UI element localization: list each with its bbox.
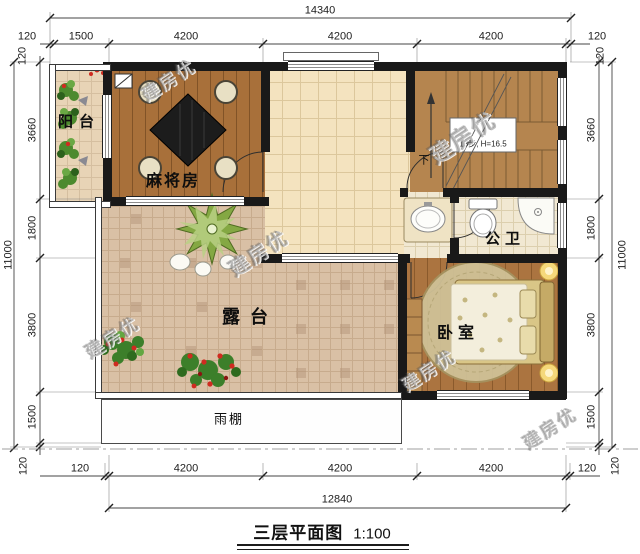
- wall-mahjong-hall-divider: [261, 70, 270, 152]
- wall-bedroom-south-a: [398, 391, 438, 400]
- window-sill-top: [283, 52, 379, 61]
- dim-top-offset-left: 120: [18, 47, 29, 65]
- window-bedroom-south: [437, 390, 529, 400]
- dim-left-0: 3660: [28, 118, 39, 142]
- wall-stairs-south-b: [443, 188, 566, 197]
- window-bath-east: [557, 203, 567, 248]
- dim-bottom-total: 12840: [322, 495, 353, 506]
- dim-top-5: 120: [588, 32, 606, 43]
- drawing-title: 三层平面图: [253, 519, 343, 544]
- wall-top-right: [374, 62, 566, 71]
- corner-shower-icon: [518, 198, 554, 234]
- room-label-balcony: 阳台: [58, 115, 100, 130]
- drawing-scale: 1:100: [353, 526, 391, 543]
- dim-top-0: 120: [18, 32, 36, 43]
- bed-icon: [451, 262, 558, 382]
- dim-right-total: 11000: [618, 240, 629, 270]
- terrace-parapet-south: [95, 392, 402, 399]
- terrace-parapet-west: [95, 197, 102, 399]
- dim-right-4: 120: [611, 457, 622, 475]
- wall-bath-west-a: [450, 196, 459, 203]
- wall-east-b: [558, 126, 567, 140]
- wall-bedroom-south-b: [529, 391, 566, 400]
- wall-east-c: [558, 184, 567, 203]
- dim-left-2: 3800: [28, 313, 39, 337]
- dim-left-1: 1800: [28, 216, 39, 240]
- dim-bottom-4: 120: [578, 464, 596, 475]
- dim-top-1: 1500: [69, 32, 93, 43]
- rain-canopy-outline: [101, 399, 402, 444]
- dim-bottom-1: 4200: [174, 464, 198, 475]
- dim-left-3: 1500: [28, 405, 39, 429]
- dim-top-2: 4200: [174, 32, 198, 43]
- dim-bottom-3: 4200: [479, 464, 503, 475]
- wall-east-d: [558, 248, 567, 399]
- room-label-canopy: 雨棚: [214, 413, 244, 426]
- dim-left-total: 11000: [4, 240, 15, 270]
- dim-left-4: 120: [19, 457, 30, 475]
- dim-top-3: 4200: [328, 32, 352, 43]
- wall-stairs-south-a: [400, 188, 408, 197]
- window-stairs-east-1: [557, 78, 567, 126]
- room-label-terrace: 露台: [222, 308, 278, 326]
- dim-top-offset-right: 120: [596, 47, 607, 65]
- dim-top-total: 14340: [305, 6, 336, 17]
- dim-right-3: 1500: [587, 405, 598, 429]
- stair-down-label: 下: [419, 156, 430, 167]
- room-label-bath: 公卫: [485, 232, 525, 247]
- dim-right-2: 3800: [587, 313, 598, 337]
- window-balcony-mahjong: [102, 95, 112, 158]
- window-hall-south: [282, 253, 398, 263]
- title-underline: [237, 544, 409, 550]
- wall-hall-stairs-divider: [406, 62, 415, 152]
- balcony-parapet-west: [49, 64, 56, 208]
- floor-plan-canvas: 阳台 麻将房 公卫 露台 卧室 雨棚 下 13步, H=16.5 14340 1…: [0, 0, 640, 554]
- dim-right-0: 3660: [587, 118, 598, 142]
- wall-east-a: [558, 62, 567, 78]
- dim-top-4: 4200: [479, 32, 503, 43]
- room-label-bedroom: 卧室: [437, 326, 479, 342]
- dim-bottom-2: 4200: [328, 464, 352, 475]
- dim-right-1: 1800: [587, 216, 598, 240]
- corner-drain-symbol: [115, 74, 132, 88]
- balcony-parapet-north: [49, 64, 111, 71]
- wall-mahjong-south-b: [244, 197, 269, 206]
- window-hall-north: [288, 61, 374, 71]
- dim-bottom-0: 120: [71, 464, 89, 475]
- window-stairs-east-2: [557, 140, 567, 184]
- wall-bedroom-north-b: [447, 254, 566, 263]
- room-label-mahjong: 麻将房: [146, 174, 200, 190]
- drawing-title-row: 三层平面图 1:100: [253, 519, 391, 544]
- window-mahjong-south: [126, 196, 244, 206]
- washbasin-icon: [404, 198, 452, 242]
